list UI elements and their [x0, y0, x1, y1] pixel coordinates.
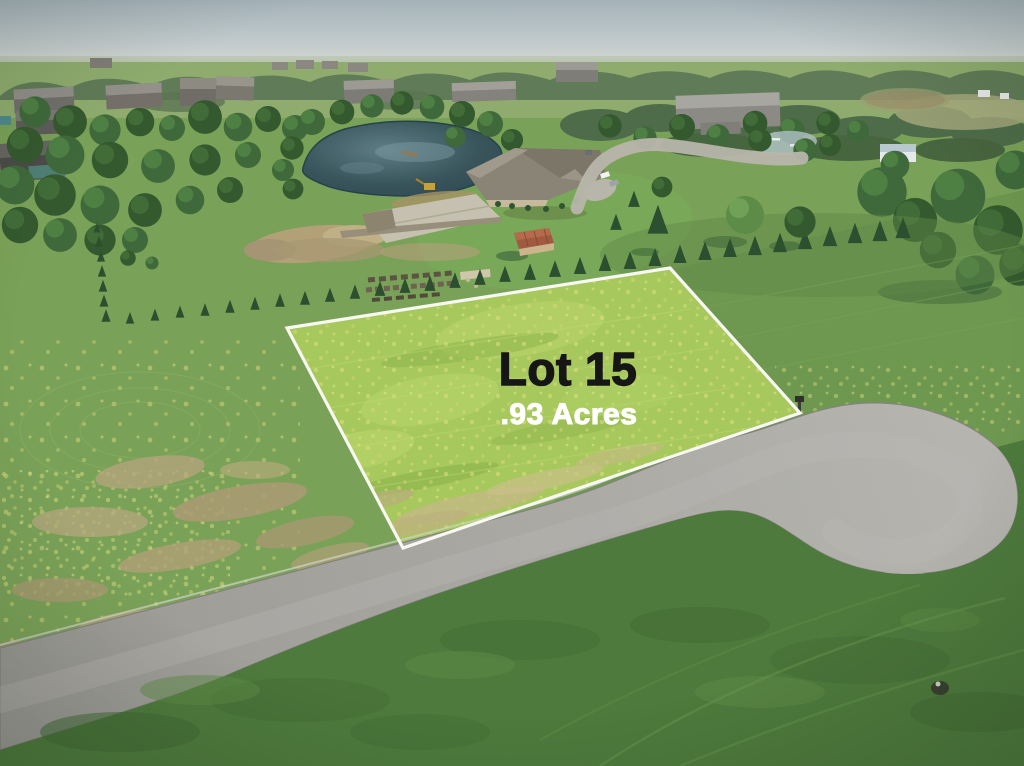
- aerial-photo: Lot 15 .93 Acres: [0, 0, 1024, 766]
- lot-acreage-label: .93 Acres: [501, 400, 638, 430]
- lot-number-label: Lot 15: [499, 346, 637, 392]
